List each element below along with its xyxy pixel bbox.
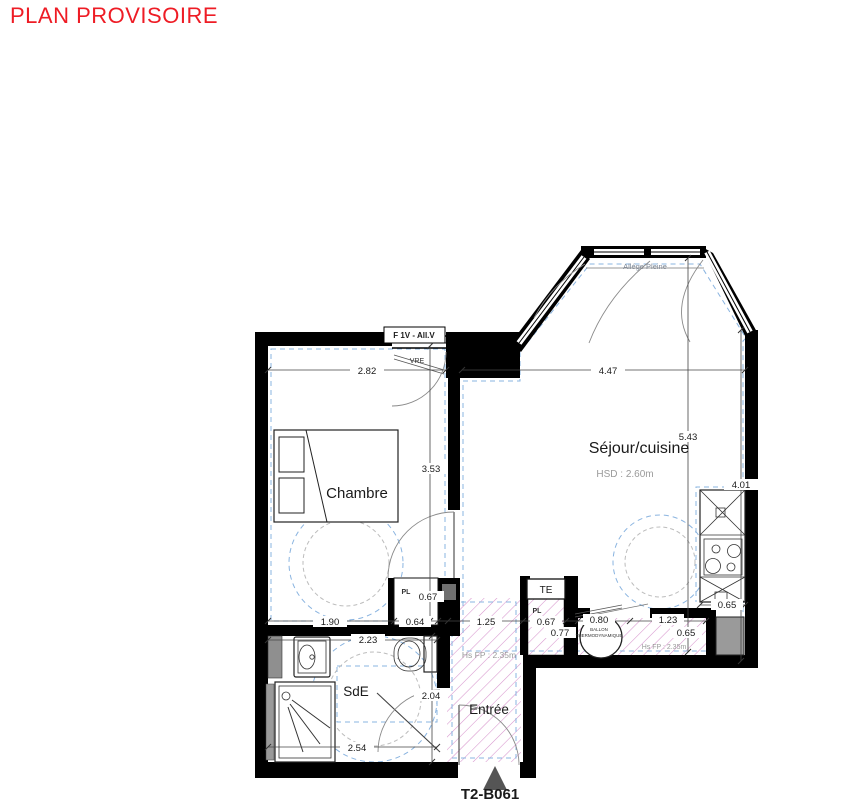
window-swing-arc	[682, 260, 703, 342]
window-swing-arc	[589, 261, 650, 343]
shower	[266, 682, 335, 762]
dim-kitchen-counter: 0.65	[718, 600, 737, 611]
label-pl-2: PL	[533, 608, 543, 615]
label-sejour: Séjour/cuisine	[589, 440, 690, 457]
shaft	[716, 617, 744, 655]
label-ballon-2: THERMODYNAMIQUE	[576, 633, 623, 638]
dim-sde-depth: 2.04	[422, 691, 441, 702]
washbasin	[294, 637, 330, 677]
dim-water-heater: 0.80	[590, 615, 609, 626]
shaft	[442, 584, 456, 600]
dim-chambre-bottom: 1.90	[321, 617, 340, 628]
dim-storage-depth: 0.65	[677, 628, 696, 639]
sejour-turning-circle	[613, 515, 707, 609]
dim-sejour-width: 4.47	[599, 366, 618, 377]
label-pl-1: PL	[402, 589, 412, 596]
label-window-tag: F 1V - All.V	[393, 331, 435, 340]
dim-sde-bottom: 2.54	[348, 743, 367, 754]
label-storage-ceiling: Hs FP : 2.35m	[642, 644, 687, 651]
dim-storage-width: 1.23	[659, 615, 678, 626]
duct	[266, 684, 274, 760]
chambre-turning-circle	[289, 506, 403, 620]
unit-code: T2-B061	[461, 786, 519, 800]
dim-sde-width: 2.23	[359, 635, 378, 646]
chambre-inner-circle	[303, 520, 389, 606]
dim-closet2-width: 0.67	[537, 617, 556, 628]
label-te: TE	[540, 585, 553, 596]
label-chambre: Chambre	[326, 485, 388, 502]
label-shutter: VRE	[410, 358, 425, 365]
label-entree: Entrée	[469, 702, 509, 717]
dim-hall-width: 1.25	[477, 617, 496, 628]
duct	[268, 636, 282, 678]
label-entree-ceiling: Hs FP : 2.35m	[462, 650, 516, 660]
kitchen-counter	[700, 490, 745, 602]
dim-closet1-width: 0.64	[406, 617, 425, 628]
floor-plan: 2.82 4.47 3.53 5.43 4.01 1.90 0.64 0.67 …	[0, 0, 856, 800]
dim-chambre-width: 2.82	[358, 366, 377, 377]
dim-chambre-depth: 3.53	[422, 464, 441, 475]
dim-closet1-depth: 0.67	[419, 592, 438, 603]
toilet	[394, 636, 437, 672]
dim-closet2-depth: 0.77	[551, 628, 570, 639]
sejour-inner-circle	[625, 527, 695, 597]
label-sde: SdE	[343, 684, 369, 699]
floor-plan-page: PLAN PROVISOIRE	[0, 0, 856, 800]
bed	[274, 430, 398, 522]
entrance-marker: T2-B061	[461, 766, 519, 800]
label-spandrel: Allége Pleine	[623, 262, 667, 271]
label-sejour-ceiling: HSD : 2.60m	[596, 469, 653, 480]
label-ballon-1: BALLON	[590, 627, 608, 632]
dim-kitchen-wall: 4.01	[732, 480, 751, 491]
